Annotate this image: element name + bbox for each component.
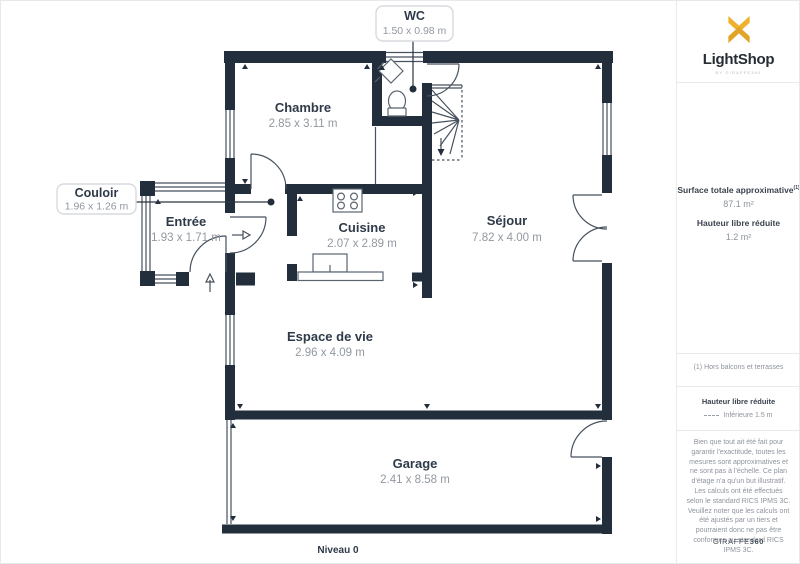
room-name: Séjour: [487, 213, 527, 228]
room-name: Espace de vie: [287, 329, 373, 344]
window-sejour: [603, 103, 611, 155]
lightshop-logo-icon: [723, 14, 755, 45]
room-label-entree: Entrée 1.93 x 1.71 m: [151, 214, 221, 244]
room-dims: 7.82 x 4.00 m: [472, 232, 542, 244]
toilet: [388, 91, 406, 116]
reduced-height-stat: Hauteur libre réduite 1.2 m²: [677, 218, 800, 242]
callout-name: Couloir: [75, 186, 119, 200]
window-chambre: [226, 110, 234, 158]
level-label: Niveau 0: [317, 545, 359, 556]
brand: LightShop BY GIRAFFE360: [677, 14, 800, 75]
annex-corner-block: [140, 181, 155, 196]
window-annex-top: [155, 183, 225, 191]
divider: [677, 82, 800, 83]
divider: [677, 386, 800, 387]
door-garage: [571, 421, 607, 457]
room-label-espace: Espace de vie 2.96 x 4.09 m: [287, 329, 373, 359]
height-value: 1.2 m²: [677, 232, 800, 242]
floorplan-page: Chambre 2.85 x 3.11 m Cuisine 2.07 x 2.8…: [0, 0, 800, 564]
divider: [677, 353, 800, 354]
room-label-sejour: Séjour 7.82 x 4.00 m: [472, 213, 542, 244]
stairs: [432, 85, 462, 160]
leader-dot: [410, 86, 417, 93]
room-label-garage: Garage 2.41 x 8.58 m: [380, 456, 450, 486]
callout-dims: 1.50 x 0.98 m: [383, 25, 447, 37]
annex-corner-block: [140, 271, 155, 286]
room-dims: 2.07 x 2.89 m: [327, 238, 397, 250]
legend-row: Inférieure 1.5 m: [677, 412, 800, 419]
callout-name: WC: [404, 9, 425, 23]
room-name: Garage: [393, 456, 438, 471]
room-dims: 2.96 x 4.09 m: [295, 347, 365, 359]
floor-plan-drawing: Chambre 2.85 x 3.11 m Cuisine 2.07 x 2.8…: [0, 0, 676, 564]
room-label-cuisine: Cuisine 2.07 x 2.89 m: [327, 220, 397, 250]
annex-corner-block: [176, 272, 189, 286]
dashed-line-icon: [704, 415, 719, 416]
brand-tagline: BY GIRAFFE360: [677, 70, 800, 75]
kitchen-sink: [298, 254, 383, 281]
room-name: Cuisine: [339, 220, 386, 235]
room-dims: 2.85 x 3.11 m: [269, 118, 338, 130]
leader-dot: [268, 199, 275, 206]
room-dims: 2.41 x 8.58 m: [380, 474, 450, 486]
surface-total-stat: Surface totale approximative(1) 87.1 m²: [677, 185, 800, 209]
info-panel: LightShop BY GIRAFFE360 Surface totale a…: [676, 0, 800, 564]
room-name: Entrée: [166, 214, 206, 229]
divider: [677, 430, 800, 431]
door-french-sejour: [573, 195, 607, 261]
footer-brand-bold: 360: [750, 537, 764, 546]
door-chambre: [251, 154, 286, 189]
surface-value: 87.1 m²: [677, 199, 800, 209]
disclaimer-1: Bien que tout ait été fait pour garantir…: [677, 438, 800, 487]
room-dims: 1.93 x 1.71 m: [151, 232, 221, 244]
surface-label: Surface totale approximative: [677, 185, 793, 195]
surface-footnote-ref: (1): [794, 185, 800, 191]
window-espace: [226, 315, 234, 365]
stove: [333, 189, 362, 212]
giraffe360-logo: GIRAFFE360: [677, 537, 800, 546]
room-name: Chambre: [275, 100, 331, 115]
room-label-chambre: Chambre 2.85 x 3.11 m: [269, 100, 338, 130]
window-annex-bottom: [155, 275, 176, 283]
brand-name: LightShop: [677, 51, 800, 68]
footnote: (1) Hors balcons et terrasses: [677, 364, 800, 371]
legend-item: Inférieure 1.5 m: [723, 412, 772, 419]
counter: [298, 272, 383, 281]
callout-dims: 1.96 x 1.26 m: [65, 201, 129, 213]
window-annex-left: [142, 196, 150, 271]
stairs-down-arrow: [438, 149, 445, 156]
height-label: Hauteur libre réduite: [677, 218, 800, 228]
footer-brand: GIRAFFE: [713, 537, 750, 546]
measure-ticks: [155, 64, 601, 522]
legend-title: Hauteur libre réduite: [677, 397, 800, 406]
garage-door-line: [227, 420, 231, 524]
floor-plan: Chambre 2.85 x 3.11 m Cuisine 2.07 x 2.8…: [0, 0, 676, 564]
